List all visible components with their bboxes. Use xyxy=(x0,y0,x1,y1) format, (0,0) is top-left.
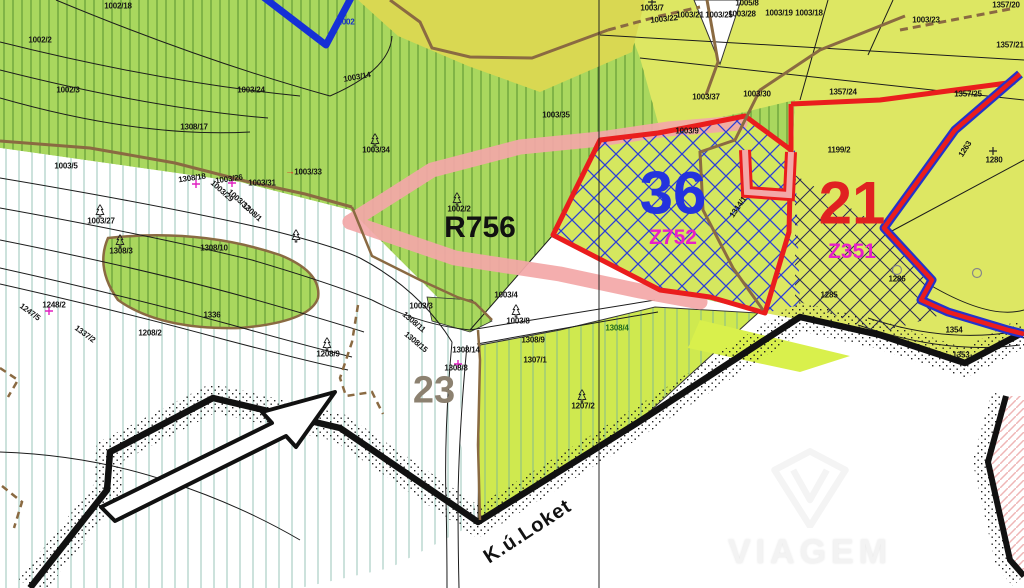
map-canvas xyxy=(0,0,1024,588)
cadastral-map: R756 36 Z752 21 Z351 23 K.ú.Loket VIAGEM… xyxy=(0,0,1024,588)
